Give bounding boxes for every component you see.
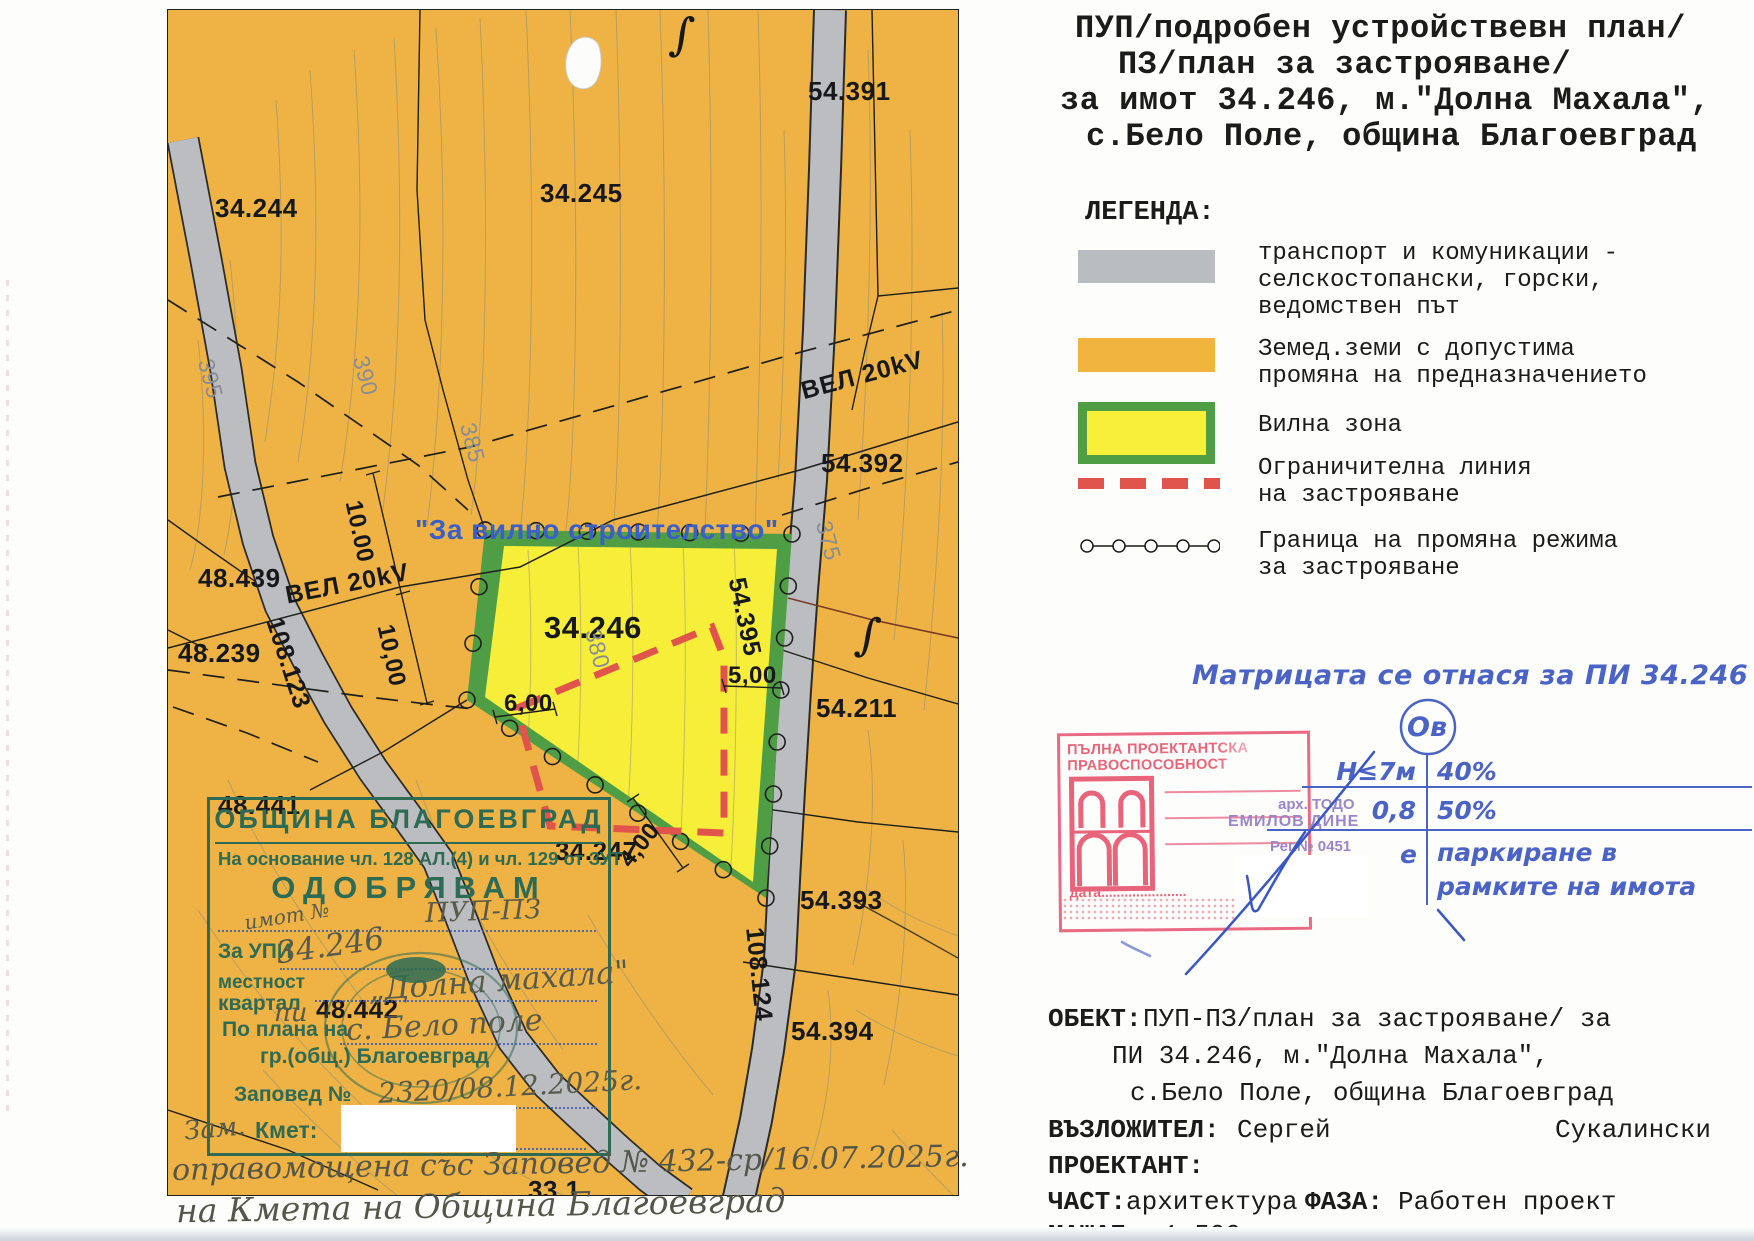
legend-item-villa: Вилна зона: [1258, 412, 1402, 439]
map-label: ВЕЛ 20kV: [283, 558, 412, 610]
title-line-4: с.Бело Поле, община Благоевград: [1086, 118, 1697, 155]
legend-item-regime-boundary: Граница на промяна режимаза застрояване: [1258, 528, 1618, 582]
villa-zone-swatch: [1078, 402, 1215, 464]
map-label: 54.395: [722, 575, 767, 659]
stamp-mestnost-label: местност: [218, 972, 305, 994]
map-label: 385: [454, 420, 490, 466]
redaction-box-signature: [341, 1105, 516, 1152]
site-plan-map: 34.24434.24554.39148.43948.23948.44148.4…: [168, 10, 958, 1195]
map-label: 6,00: [504, 690, 553, 718]
phase-label: ФАЗА:: [1305, 1187, 1383, 1217]
handwritten-imot-number: 34.246: [274, 921, 386, 972]
map-label: 54.211: [816, 693, 897, 724]
phase-value: Работен проект: [1398, 1187, 1616, 1217]
map-label: ∫: [667, 10, 697, 62]
map-label: 54.394: [791, 1016, 874, 1047]
stamp-zapoved-label: Заповед №: [234, 1083, 351, 1107]
obekt-value-line2: ПИ 34.246, м."Долна Махала",: [1112, 1041, 1549, 1071]
stamp-approve-word: ОДОБРЯВАМ: [210, 870, 608, 906]
road-swatch: [1078, 250, 1215, 283]
designer-label: ПРОЕКТАНТ:: [1048, 1151, 1204, 1181]
regime-change-boundary-swatch: [1078, 536, 1220, 556]
obekt-value-line1: ПУП-ПЗ/план за застрояване/ за: [1143, 1004, 1611, 1034]
scan-artifact-bottom: [0, 1227, 1754, 1241]
client-label: ВЪЗЛОЖИТЕЛ:: [1048, 1115, 1220, 1145]
map-label: 375: [810, 518, 846, 564]
map-label: 10,00: [371, 622, 411, 689]
handwritten-selo: с. Бело поле: [345, 1003, 543, 1048]
map-label: 10.00: [339, 498, 379, 565]
stamp-kmet-label: Кмет:: [255, 1117, 317, 1144]
stamp-rule: [215, 842, 603, 844]
stamp-title: ОБЩИНА БЛАГОЕВГРАД: [210, 804, 608, 835]
client-last-name: Сукалински: [1555, 1115, 1711, 1145]
obekt-label: ОБЕКТ:: [1048, 1004, 1142, 1034]
legend-heading: ЛЕГЕНДА:: [1085, 198, 1215, 228]
scanned-plan-sheet: 34.24434.24554.39148.43948.23948.44148.4…: [0, 0, 1754, 1241]
agri-land-swatch: [1078, 338, 1215, 372]
map-label: 54.392: [821, 448, 904, 479]
map-label: "За вилно строителство": [415, 514, 779, 546]
part-value: архитектура: [1126, 1187, 1298, 1217]
legend-item-limit-line: Ограничителна линияна застрояване: [1258, 455, 1532, 509]
map-label: 5,00: [728, 662, 777, 690]
signature-strokes: [1050, 700, 1550, 1000]
map-label: ∫: [852, 606, 884, 663]
legend-item-agri: Земед.земи с допустимапромяна на предназ…: [1258, 336, 1647, 390]
part-label: ЧАСТ:: [1048, 1187, 1126, 1217]
handwritten-zam: Зам.: [183, 1111, 247, 1146]
map-label: 54.391: [808, 76, 891, 107]
title-line-3: за имот 34.246, м."Долна Махала",: [1060, 82, 1710, 119]
obekt-value-line3: с.Бело Поле, община Благоевград: [1130, 1078, 1614, 1108]
client-first-name: Сергей: [1237, 1115, 1331, 1145]
stamp-legal-basis: На основание чл. 128 АЛ.(4) и чл. 129 от…: [218, 848, 622, 870]
building-limit-line-swatch: [1078, 478, 1220, 489]
map-label: 48.239: [178, 638, 261, 669]
map-label: 54.393: [800, 885, 883, 916]
municipality-approval-stamp: ОБЩИНА БЛАГОЕВГРАД На основание чл. 128 …: [207, 797, 611, 1156]
map-label: 390: [347, 353, 383, 399]
map-label: 34.245: [540, 178, 623, 209]
map-label: 48.439: [198, 563, 281, 594]
title-line-2: ПЗ/план за застрояване/: [1118, 46, 1571, 83]
map-label: 395: [192, 356, 228, 402]
scan-artifact-left: [6, 280, 9, 1120]
map-label: 108.123: [259, 614, 316, 712]
handwritten-plan-type: ПУП-ПЗ: [424, 894, 541, 929]
stamp-city-label: гр.(общ.) Благоевград: [260, 1045, 489, 1069]
handwritten-zapoved-number: 2320/08.12.2025г.: [377, 1063, 642, 1110]
map-label: ВЕЛ 20kV: [798, 345, 927, 406]
map-label: 34.244: [215, 193, 298, 224]
map-label: 108.124: [739, 926, 778, 1022]
stamp-po-plana-label: По плана на: [222, 1018, 348, 1042]
matrix-note: Матрицата се отнася за ПИ 34.246: [1192, 660, 1748, 691]
title-line-1: ПУП/подробен устройствевн план/: [1075, 10, 1686, 47]
legend-item-road: транспорт и комуникации -селскостопански…: [1258, 240, 1618, 321]
